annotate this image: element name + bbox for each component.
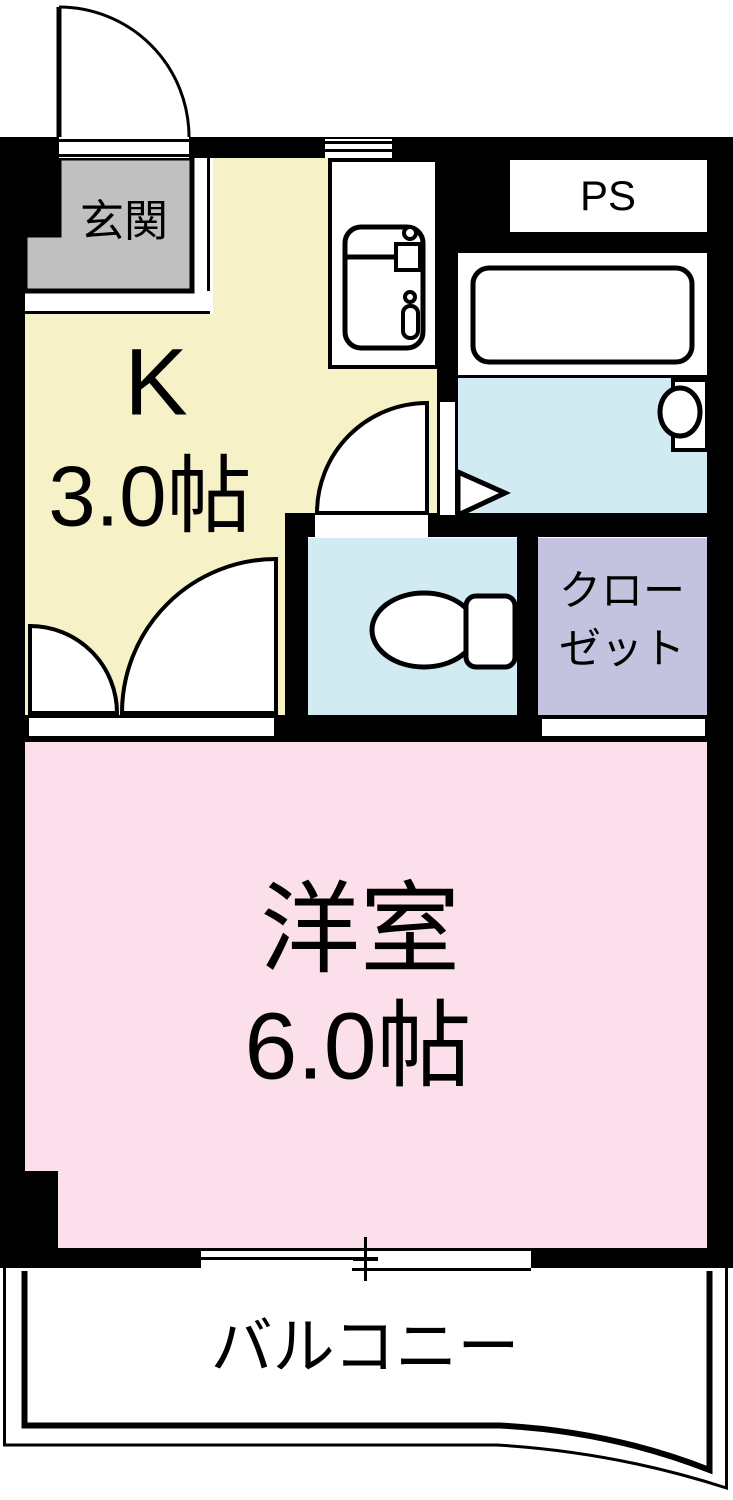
sliding-window-left-pane (201, 1257, 378, 1260)
washroom-floor-edge (458, 375, 707, 378)
genkan-step (25, 291, 210, 314)
kitchen-type-label: K (124, 336, 187, 431)
genkan-step-edge (25, 311, 210, 314)
wall-right (707, 155, 733, 1248)
bathtub-icon (473, 268, 692, 362)
western-room-label: 洋室 (260, 880, 460, 980)
balcony-label: バルコニー (211, 1317, 520, 1379)
toilet-tank-icon (466, 596, 515, 667)
wall-genkan-block (25, 158, 59, 235)
sink-knob-icon (405, 292, 415, 302)
floor-plan: 玄関 K 3.0帖 PS クロー ゼット 洋室 6.0帖 バルコニー (0, 0, 733, 1500)
washroom-doorway-line (437, 402, 440, 515)
wall-toilet-closet (517, 537, 538, 742)
wall-toilet-left (285, 537, 308, 742)
wall-kitchen-bath (437, 253, 458, 405)
wall-bottom-left-block (25, 1171, 58, 1248)
wall-left (0, 155, 25, 1248)
kitchen-doorway-line (29, 736, 274, 739)
sink-drain-icon (403, 306, 418, 338)
closet-doorway-line (542, 716, 705, 719)
entrance-doorway-line (59, 154, 189, 157)
ps-label: PS (580, 175, 636, 217)
closet-label-line1: クロー (559, 562, 685, 620)
toilet-doorway (315, 515, 428, 537)
kitchen-doorway-line (29, 715, 274, 718)
genkan-label: 玄関 (80, 200, 168, 244)
washbasin-icon (660, 388, 700, 436)
kitchen-size-label: 3.0帖 (48, 455, 251, 540)
closet-label-line2: ゼット (559, 620, 685, 678)
genkan-step-edge (207, 158, 210, 314)
closet-label: クロー ゼット (559, 562, 685, 678)
sink-knob-icon (404, 227, 416, 239)
western-room-size-label: 6.0帖 (244, 1000, 471, 1095)
faucet-valve-icon (396, 244, 420, 270)
closet-doorway-line (542, 736, 705, 739)
entrance-doorway-line (59, 139, 189, 142)
entrance-door-arc (59, 7, 189, 137)
kitchen-window-line (325, 149, 392, 152)
kitchen-window-line (325, 141, 392, 144)
kitchen-doorway (29, 717, 274, 739)
washroom-doorway (437, 402, 458, 515)
toilet-bowl-icon (372, 593, 476, 667)
sliding-window-right-pane (352, 1268, 531, 1271)
closet-doorway (542, 718, 705, 739)
sliding-window-center-tick (364, 1237, 367, 1281)
